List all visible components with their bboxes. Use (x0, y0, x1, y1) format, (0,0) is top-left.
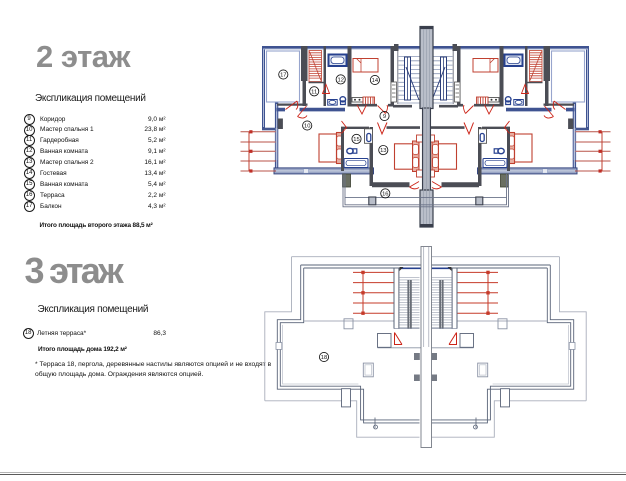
svg-text:18: 18 (321, 355, 327, 361)
svg-text:12: 12 (337, 78, 343, 84)
svg-text:11: 11 (311, 89, 317, 95)
svg-text:16: 16 (382, 192, 388, 198)
svg-text:9: 9 (383, 114, 386, 120)
svg-text:10: 10 (304, 124, 310, 130)
svg-text:13: 13 (380, 148, 386, 154)
svg-text:14: 14 (372, 78, 379, 84)
svg-text:15: 15 (353, 137, 359, 143)
svg-text:17: 17 (280, 73, 286, 79)
